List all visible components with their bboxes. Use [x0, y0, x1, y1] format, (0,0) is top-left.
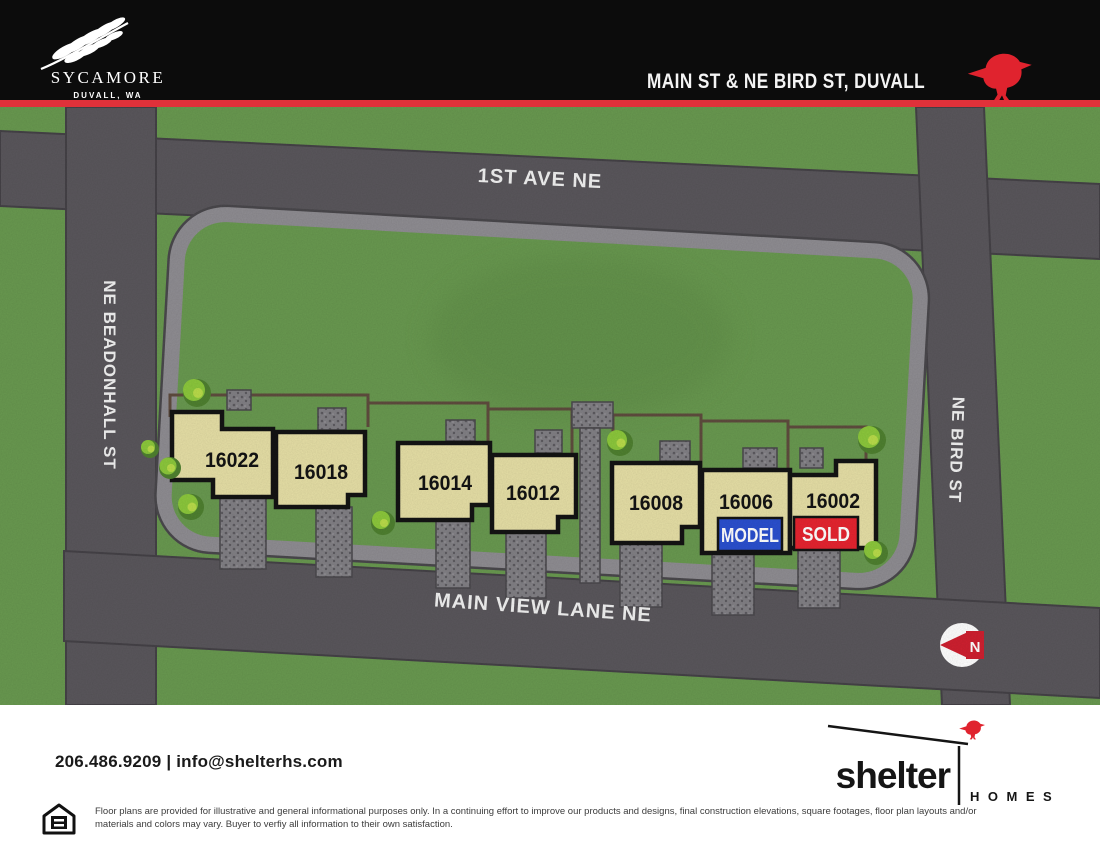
- community-brand: SYCAMORE DUVALL, WA: [18, 10, 198, 100]
- texture-overlay: [0, 107, 1100, 705]
- crossroads-label: MAIN ST & NE BIRD ST, DUVALL: [647, 70, 925, 94]
- footer: 206.486.9209 | info@shelterhs.com shelte…: [0, 705, 1100, 850]
- community-city: DUVALL, WA: [18, 91, 198, 100]
- shelter-homes-logo: shelter HOMES: [818, 708, 1093, 808]
- header-bar: SYCAMORE DUVALL, WA MAIN ST & NE BIRD ST…: [0, 0, 1100, 100]
- equal-housing-icon: [42, 803, 76, 835]
- site-plan-flyer: SYCAMORE DUVALL, WA MAIN ST & NE BIRD ST…: [0, 0, 1100, 850]
- site-map: 16022 16018 16014 16012 16008 16006 1600…: [0, 107, 1100, 705]
- logo-roof-line: [828, 726, 968, 744]
- red-accent-stripe: [0, 100, 1100, 107]
- builder-name: shelter: [836, 755, 951, 796]
- disclaimer-text: Floor plans are provided for illustrativ…: [95, 806, 1000, 831]
- community-name: SYCAMORE: [18, 68, 198, 88]
- red-bird-icon: [962, 50, 1042, 102]
- contact-line: 206.486.9209 | info@shelterhs.com: [55, 752, 343, 772]
- builder-type: HOMES: [970, 789, 1060, 804]
- logo-bird-icon: [959, 721, 985, 740]
